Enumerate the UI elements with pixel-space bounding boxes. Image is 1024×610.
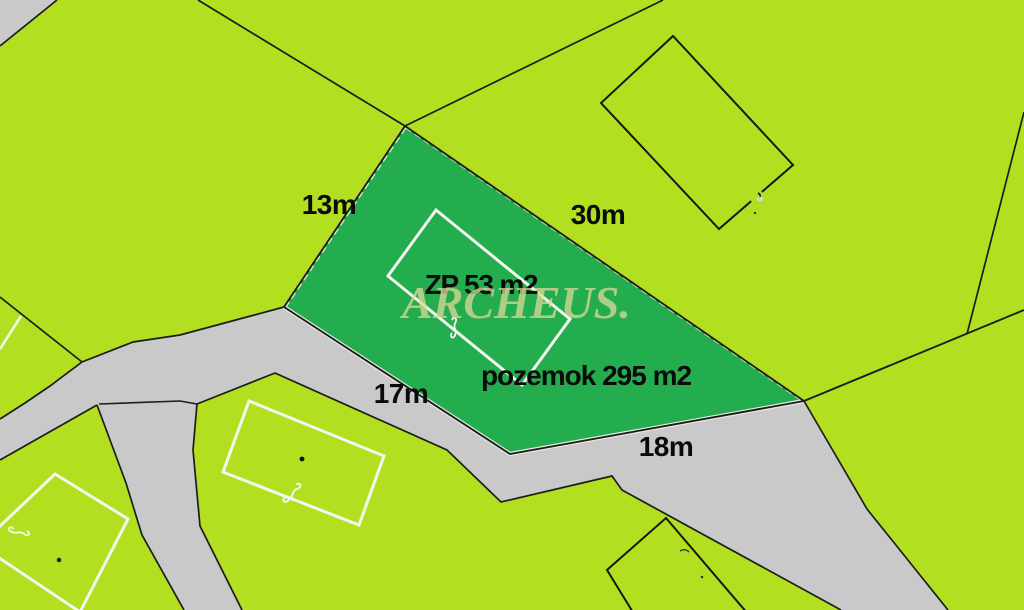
- svg-text:18m: 18m: [639, 431, 694, 462]
- svg-text:30m: 30m: [571, 199, 626, 230]
- svg-text:13m: 13m: [302, 189, 357, 220]
- svg-text:17m: 17m: [374, 378, 429, 409]
- svg-text:pozemok 295 m2: pozemok 295 m2: [481, 360, 692, 391]
- svg-text:ARCHEUS.: ARCHEUS.: [399, 277, 631, 328]
